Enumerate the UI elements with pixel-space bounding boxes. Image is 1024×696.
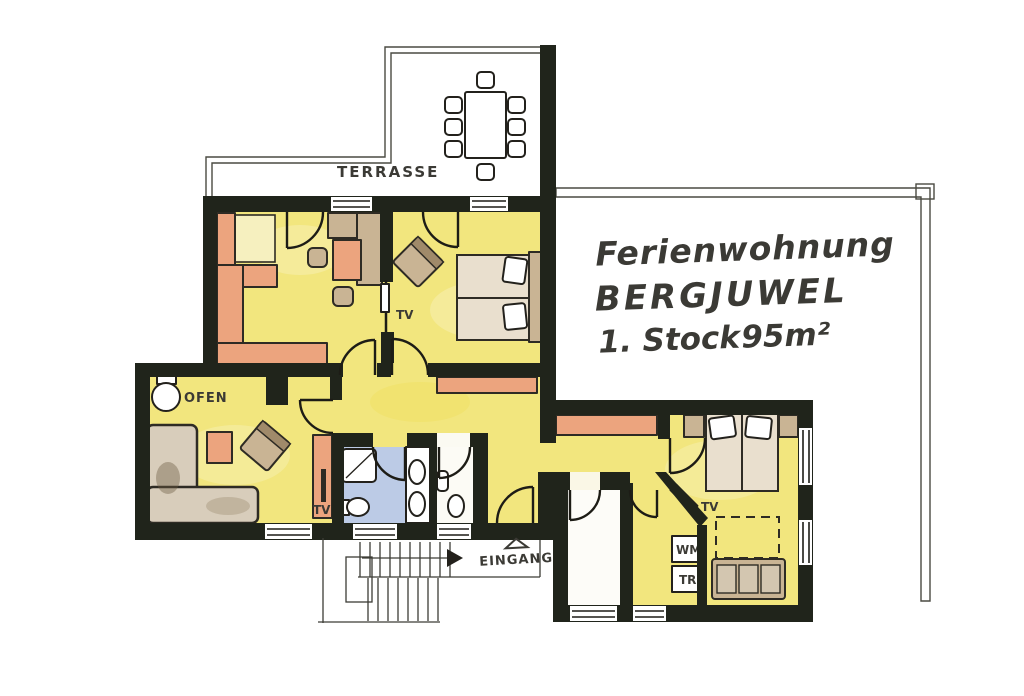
threshold (570, 472, 600, 490)
kitchen-appliance (235, 215, 275, 262)
nightstand (779, 415, 798, 437)
kitchen-table (333, 240, 361, 280)
wall (380, 212, 393, 282)
tv-label: TV (701, 500, 719, 514)
terrace-chair (508, 141, 525, 157)
threshold (437, 433, 470, 447)
sofa-shading (206, 497, 250, 515)
terrace-chair (477, 164, 494, 180)
sofa-shading (156, 462, 180, 494)
wall (556, 400, 813, 415)
wall (697, 525, 707, 605)
stool (308, 248, 327, 267)
terrace-chair (445, 141, 462, 157)
wardrobe (556, 415, 657, 435)
floor-plan: TERRASSE (0, 0, 1024, 696)
terrace: TERRASSE (206, 47, 552, 196)
wall (430, 447, 437, 523)
wall (203, 363, 343, 377)
nightstand (684, 415, 704, 437)
stair-treads-upper (360, 542, 450, 577)
pillow (709, 415, 737, 439)
window (331, 197, 372, 211)
entrance-label: EINGANG (479, 551, 554, 570)
wall (135, 523, 556, 540)
window (799, 520, 812, 565)
title-line2: BERGJUWEL (594, 271, 848, 320)
tv-label: TV (396, 308, 414, 322)
sink (409, 492, 425, 516)
window (265, 524, 312, 539)
terrace-chair (445, 119, 462, 135)
wall (538, 472, 570, 490)
threshold (630, 472, 657, 490)
wall (407, 433, 437, 447)
pillow (502, 257, 527, 285)
wall (377, 363, 391, 377)
bench-cushion (761, 565, 780, 593)
terrace-chair (508, 97, 525, 113)
coffee-table (207, 432, 232, 463)
window (470, 197, 508, 211)
wall (428, 363, 541, 377)
tv (381, 284, 389, 312)
toilet (347, 498, 369, 516)
dryer-label: TR (679, 573, 696, 587)
stove-label: OFEN (184, 391, 228, 406)
terrace-chair (477, 72, 494, 88)
terrace-chair (445, 97, 462, 113)
threshold (340, 363, 377, 377)
kitchen-counter (217, 213, 235, 265)
pillow (745, 416, 772, 439)
wall (473, 433, 488, 523)
wall (135, 363, 150, 538)
tiled-stove (152, 383, 180, 411)
stair-direction-arrow (447, 549, 463, 567)
floor-plan-svg: TERRASSE (0, 0, 1024, 696)
wall (330, 377, 342, 400)
threshold (391, 363, 428, 377)
threshold (373, 433, 407, 447)
tv (321, 469, 326, 502)
stair-treads-lower (368, 578, 438, 621)
bench-cushion (717, 565, 736, 593)
window (799, 428, 812, 485)
wall (553, 472, 568, 605)
bench-cushion (739, 565, 758, 593)
hallway (437, 377, 537, 393)
wall (340, 433, 373, 447)
title-area: 95m² (741, 316, 832, 355)
terrace-label: TERRASSE (337, 163, 439, 181)
pillow (503, 303, 527, 330)
terrace-dining-table (465, 92, 506, 158)
chimney (266, 377, 288, 405)
stool (333, 287, 353, 306)
entrance-mark: EINGANG (478, 537, 553, 570)
window (353, 524, 397, 539)
kitchen-counter (217, 343, 327, 365)
terrace-chair (508, 119, 525, 135)
title-line1: Ferienwohnung (595, 224, 896, 273)
wall (540, 45, 556, 443)
tv-label: TV (313, 503, 331, 517)
wall (658, 415, 670, 439)
window (570, 606, 617, 621)
staircase (318, 538, 540, 623)
window (633, 606, 666, 621)
wardrobe (437, 377, 537, 393)
title-line3: 1. Stock (598, 320, 743, 361)
threshold (330, 400, 342, 433)
wall (203, 196, 217, 377)
window (437, 524, 471, 539)
title-block: Ferienwohnung BERGJUWEL 1. Stock 95m² (593, 224, 899, 360)
toilet (448, 495, 464, 517)
wall (620, 483, 633, 605)
sink (409, 460, 425, 484)
